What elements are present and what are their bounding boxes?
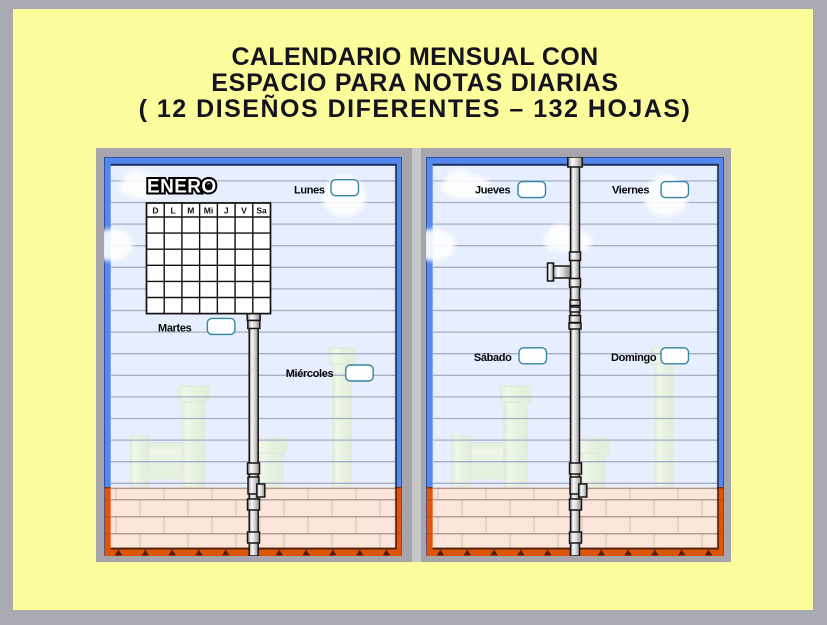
svg-text:Sa: Sa (256, 206, 267, 216)
svg-text:Domingo: Domingo (611, 352, 657, 364)
svg-text:Viernes: Viernes (612, 185, 649, 197)
svg-text:V: V (241, 206, 247, 216)
svg-text:Martes: Martes (158, 323, 192, 335)
svg-text:Lunes: Lunes (294, 185, 325, 197)
svg-text:J: J (224, 206, 229, 216)
svg-text:D: D (152, 206, 158, 216)
svg-text:Sábado: Sábado (474, 352, 512, 364)
svg-text:Mi: Mi (204, 206, 213, 216)
svg-text:Miércoles: Miércoles (286, 368, 334, 380)
svg-text:ENERO: ENERO (147, 177, 217, 198)
svg-text:M: M (187, 206, 194, 216)
svg-text:Jueves: Jueves (475, 185, 510, 197)
svg-text:L: L (170, 206, 175, 216)
